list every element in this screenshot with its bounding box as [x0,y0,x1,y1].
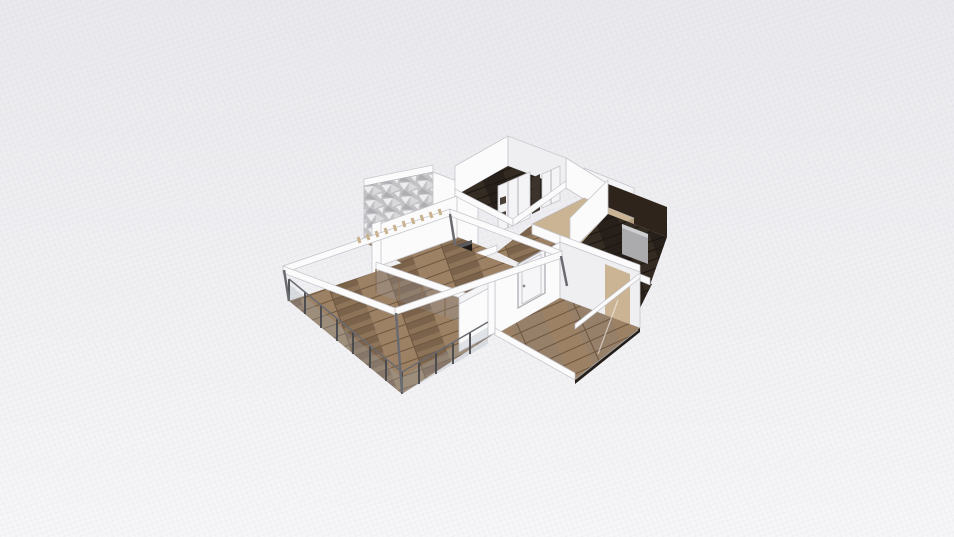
floorplan-render [0,0,954,537]
room-br-west-cap [488,275,495,336]
floorplan-3d-viewport[interactable] [0,0,954,537]
